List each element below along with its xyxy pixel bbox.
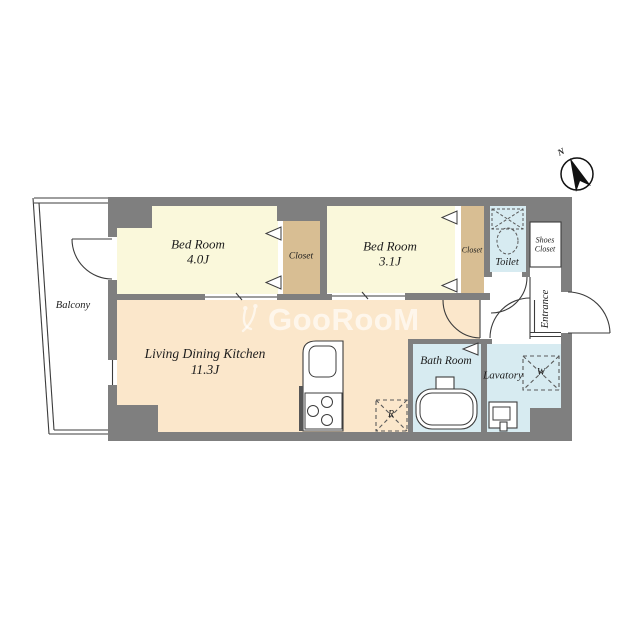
balcony-railing	[33, 198, 108, 434]
toilet-label: Toilet	[495, 257, 519, 269]
ldk-size: 11.3J	[145, 362, 266, 378]
entrance-label: Entrance	[540, 290, 552, 329]
bedroom2-name: Bed Room	[363, 239, 417, 254]
floor-plan-page: Balcony Bed Room 4.0J Closet Bed Room 3.…	[0, 0, 640, 640]
ldk-label: Living Dining Kitchen 11.3J	[145, 346, 266, 378]
washbasin-icon	[489, 402, 517, 431]
bedroom1-size: 4.0J	[171, 252, 225, 267]
shoes-closet-line1: Shoes	[535, 236, 555, 245]
bedroom2-label: Bed Room 3.1J	[363, 239, 417, 270]
balcony-label: Balcony	[56, 300, 90, 312]
closet1-label: Closet	[289, 251, 313, 262]
bedroom2-size: 3.1J	[363, 254, 417, 269]
bathroom-label: Bath Room	[420, 355, 471, 369]
bedroom1-name: Bed Room	[171, 237, 225, 252]
shoes-closet-label: Shoes Closet	[535, 236, 555, 255]
kitchen-counter-icon	[299, 341, 343, 431]
closet2-label: Closet	[462, 245, 482, 254]
ldk-name: Living Dining Kitchen	[145, 346, 266, 362]
refrigerator-label: R	[388, 409, 394, 421]
shoes-closet-line2: Closet	[535, 245, 555, 254]
bedroom1-label: Bed Room 4.0J	[171, 237, 225, 268]
compass-north-icon	[561, 158, 593, 192]
lavatory-label: Lavatory	[483, 370, 523, 383]
washer-label: W	[537, 367, 545, 379]
